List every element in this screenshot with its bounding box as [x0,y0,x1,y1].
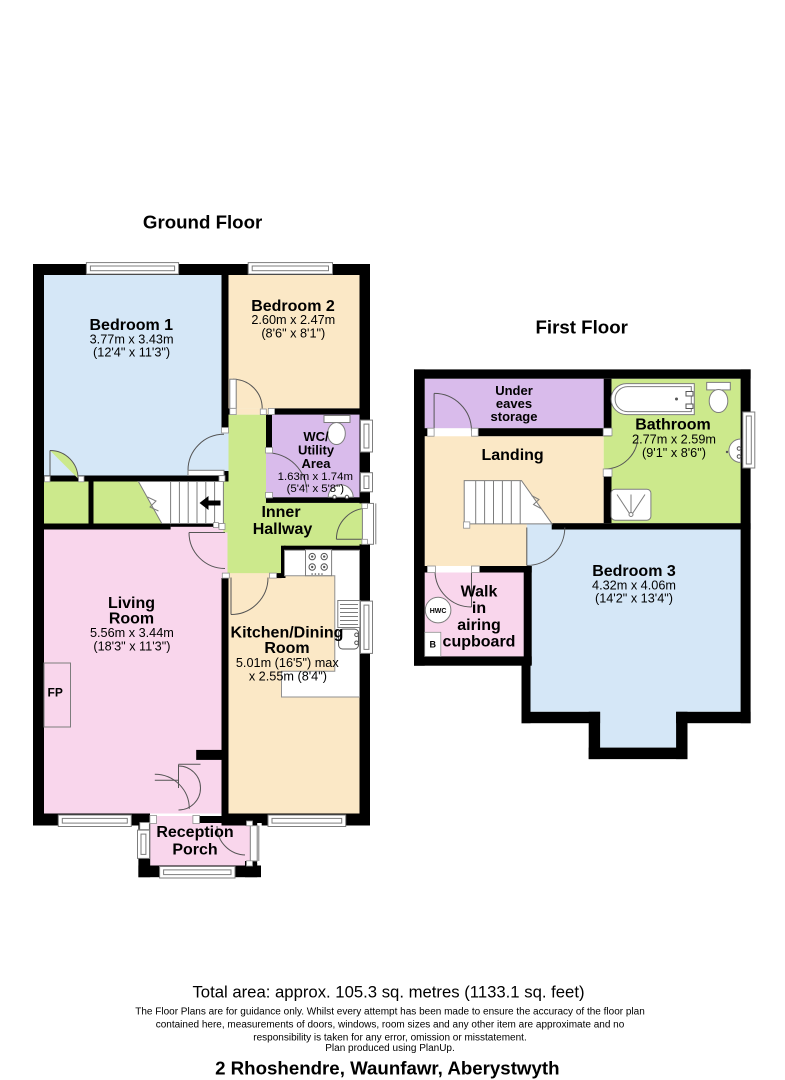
svg-text:Kitchen/Dining: Kitchen/Dining [231,625,344,642]
svg-text:(9'1" x 8'6"): (9'1" x 8'6") [642,446,706,460]
svg-text:(5'4" x 5'8"): (5'4" x 5'8") [287,483,345,495]
svg-text:(12'4" x 11'3"): (12'4" x 11'3") [93,346,170,360]
svg-text:Living: Living [108,595,155,612]
svg-text:2.60m x 2.47m: 2.60m x 2.47m [251,313,335,327]
svg-text:5.56m x 3.44m: 5.56m x 3.44m [90,626,174,640]
svg-text:(18'3" x 11'3"): (18'3" x 11'3") [93,639,170,653]
svg-text:in: in [472,600,486,617]
svg-text:(14'2" x 13'4"): (14'2" x 13'4") [595,592,673,606]
svg-text:Inner: Inner [261,504,300,521]
svg-text:5.01m (16'5") max: 5.01m (16'5") max [236,656,339,670]
svg-text:Walk: Walk [461,584,498,601]
svg-text:3.77m x 3.43m: 3.77m x 3.43m [90,332,174,346]
svg-text:Hallway: Hallway [253,521,313,538]
svg-text:x 2.55m (8'4"): x 2.55m (8'4") [249,669,327,683]
svg-text:1.63m x 1.74m: 1.63m x 1.74m [278,471,353,483]
svg-text:FP: FP [48,686,63,700]
svg-text:First Floor: First Floor [535,317,627,338]
svg-text:(8'6" x 8'1"): (8'6" x 8'1") [261,327,325,341]
svg-text:contained here, measurements o: contained here, measurements of doors, w… [156,1020,625,1031]
svg-text:The Floor Plans are for guidan: The Floor Plans are for guidance only. W… [135,1007,645,1018]
svg-text:B: B [429,640,436,650]
svg-text:cupboard: cupboard [443,633,516,650]
svg-text:storage: storage [491,409,538,424]
svg-text:airing: airing [457,617,501,634]
svg-text:2.77m x 2.59m: 2.77m x 2.59m [632,433,716,447]
svg-text:Landing: Landing [481,447,543,464]
svg-text:Room: Room [264,640,309,657]
svg-text:Bathroom: Bathroom [635,417,711,434]
svg-text:Area: Area [302,456,332,471]
svg-text:Porch: Porch [172,842,217,859]
svg-text:Plan produced using PlanUp.: Plan produced using PlanUp. [325,1043,455,1054]
svg-text:HWC: HWC [430,608,447,615]
svg-text:4.32m x 4.06m: 4.32m x 4.06m [592,578,676,592]
svg-text:Reception: Reception [156,824,233,841]
svg-text:2 Rhoshendre, Waunfawr, Aberys: 2 Rhoshendre, Waunfawr, Aberystwyth [215,1058,559,1079]
svg-text:Room: Room [109,611,154,628]
svg-text:Ground Floor: Ground Floor [143,212,262,233]
svg-text:Total area: approx. 105.3 sq.: Total area: approx. 105.3 sq. metres (11… [192,983,584,1002]
